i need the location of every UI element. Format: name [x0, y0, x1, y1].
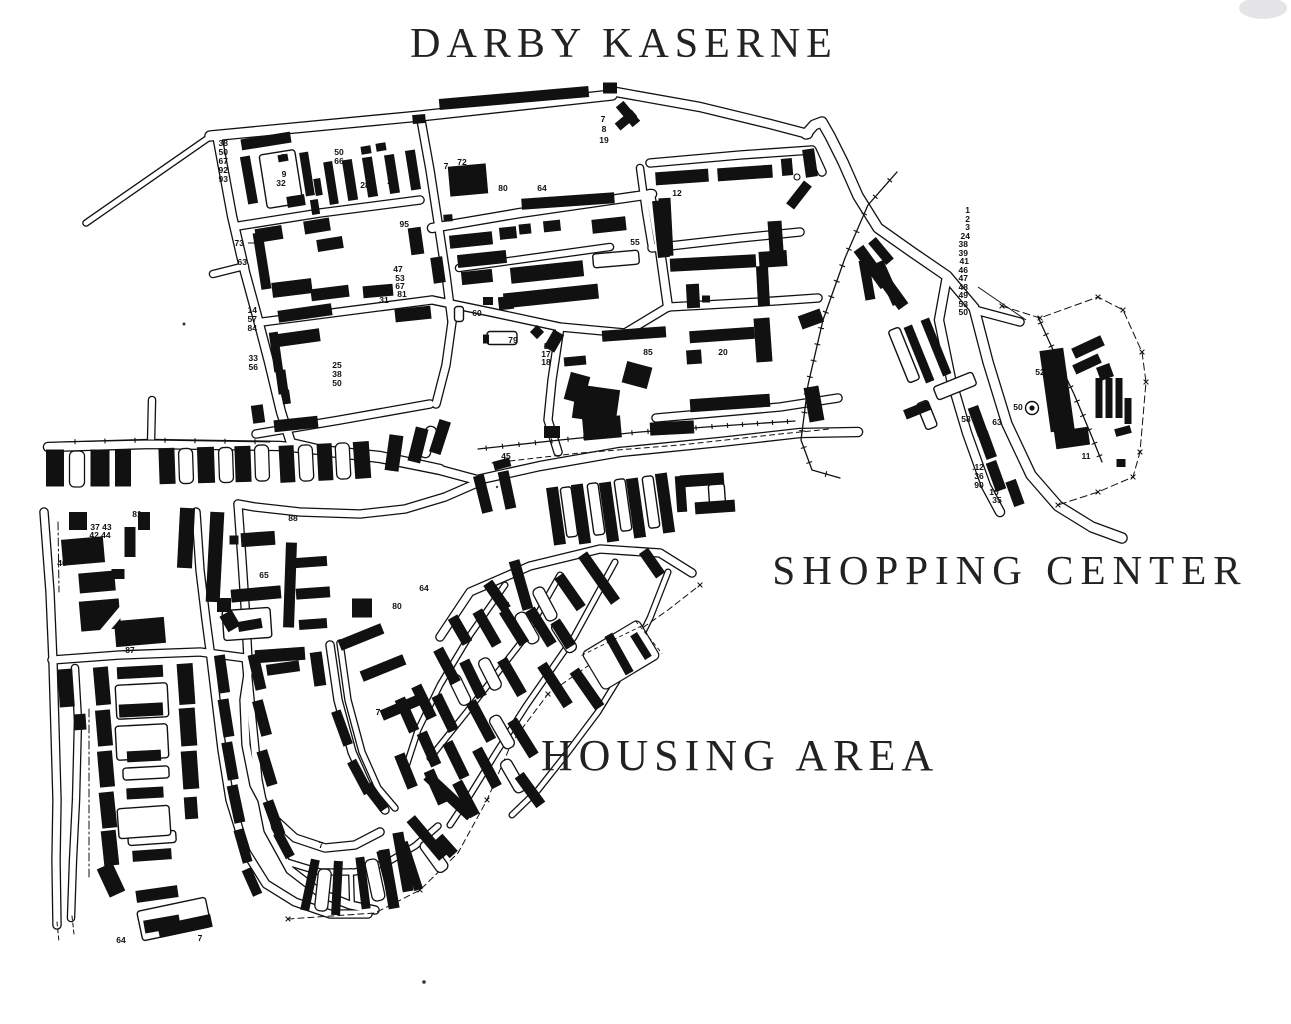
svg-text:81: 81 — [132, 509, 142, 519]
svg-text:11: 11 — [1082, 451, 1091, 461]
svg-text:93: 93 — [219, 174, 229, 184]
svg-text:7: 7 — [1054, 405, 1059, 415]
svg-text:56: 56 — [249, 362, 259, 372]
svg-text:31: 31 — [379, 295, 389, 305]
svg-text:74: 74 — [95, 571, 105, 581]
svg-text:12: 12 — [672, 188, 682, 198]
svg-text:65: 65 — [259, 570, 269, 580]
svg-text:80: 80 — [498, 183, 508, 193]
svg-text:7: 7 — [601, 114, 606, 124]
svg-text:23: 23 — [387, 176, 397, 186]
svg-text:35: 35 — [992, 495, 1002, 505]
svg-text:87: 87 — [125, 645, 135, 655]
svg-text:79: 79 — [508, 335, 518, 345]
svg-text:7: 7 — [505, 600, 510, 610]
svg-text:SHOPPING CENTER: SHOPPING CENTER — [772, 547, 1247, 593]
svg-text:84: 84 — [248, 323, 258, 333]
svg-text:55: 55 — [630, 237, 640, 247]
svg-text:88: 88 — [288, 513, 298, 523]
svg-text:50: 50 — [959, 307, 969, 317]
svg-text:73: 73 — [235, 238, 245, 248]
svg-text:52: 52 — [1035, 367, 1045, 377]
svg-text:95: 95 — [400, 219, 410, 229]
svg-text:HOUSING AREA: HOUSING AREA — [541, 731, 939, 780]
svg-text:64: 64 — [537, 183, 547, 193]
svg-text:DARBY KASERNE: DARBY KASERNE — [410, 21, 838, 67]
svg-text:64: 64 — [116, 935, 126, 945]
svg-text:80: 80 — [392, 601, 402, 611]
svg-text:8: 8 — [602, 124, 607, 134]
svg-text:45: 45 — [501, 451, 511, 461]
svg-text:63: 63 — [992, 417, 1002, 427]
svg-text:63: 63 — [238, 257, 248, 267]
svg-text:8: 8 — [281, 152, 286, 162]
svg-text:86: 86 — [277, 649, 287, 659]
svg-text:20: 20 — [718, 347, 728, 357]
svg-text:18: 18 — [541, 357, 551, 367]
svg-text:60: 60 — [472, 308, 482, 318]
svg-text:19: 19 — [599, 135, 609, 145]
svg-text:40: 40 — [57, 558, 67, 568]
svg-text:72: 72 — [457, 157, 467, 167]
svg-text:42 44: 42 44 — [89, 530, 111, 540]
svg-text:7: 7 — [198, 933, 203, 943]
svg-text:90: 90 — [974, 480, 984, 490]
svg-text:49: 49 — [288, 194, 298, 204]
svg-text:7: 7 — [319, 840, 324, 850]
svg-text:81: 81 — [397, 289, 407, 299]
svg-text:64: 64 — [419, 583, 429, 593]
svg-text:28: 28 — [360, 180, 370, 190]
svg-text:85: 85 — [643, 347, 653, 357]
svg-text:50: 50 — [1013, 402, 1023, 412]
svg-text:50: 50 — [332, 378, 342, 388]
svg-text:7: 7 — [376, 707, 381, 717]
svg-text:66: 66 — [334, 156, 344, 166]
svg-text:7: 7 — [444, 161, 449, 171]
svg-text:32: 32 — [276, 178, 286, 188]
svg-text:58: 58 — [961, 414, 971, 424]
